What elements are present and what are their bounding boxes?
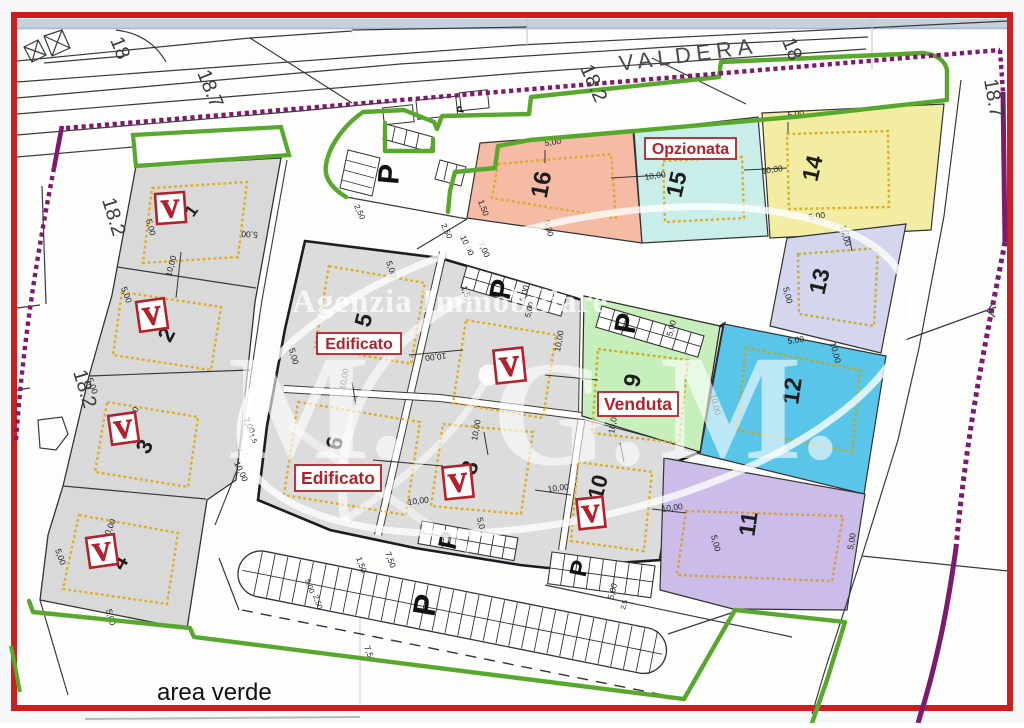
svg-text:V: V [498, 351, 521, 384]
svg-text:Edificato: Edificato [325, 336, 393, 353]
svg-text:16: 16 [526, 169, 558, 200]
svg-text:Opzionata: Opzionata [652, 141, 729, 158]
svg-text:area verde: area verde [157, 679, 272, 706]
svg-text:Edificato: Edificato [301, 468, 375, 488]
svg-text:V: V [447, 467, 470, 499]
svg-text:11: 11 [734, 510, 763, 538]
svg-text:V: V [160, 194, 181, 224]
svg-text:12: 12 [777, 376, 807, 406]
svg-text:5,00: 5,00 [241, 229, 258, 240]
svg-text:Venduta: Venduta [604, 394, 672, 414]
svg-text:V: V [581, 500, 602, 529]
